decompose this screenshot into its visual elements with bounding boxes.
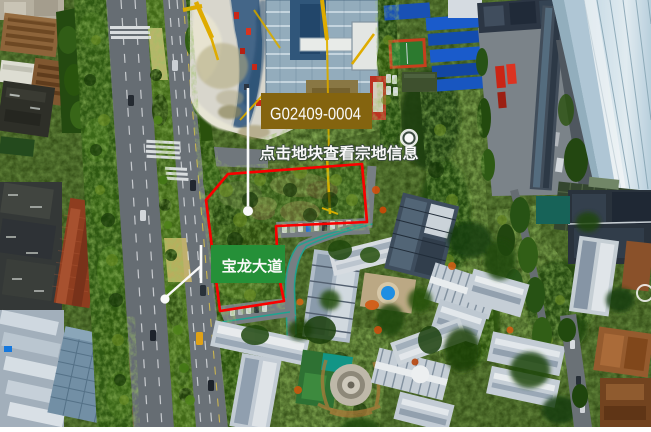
svg-text:G02409-0004: G02409-0004 <box>270 104 361 124</box>
